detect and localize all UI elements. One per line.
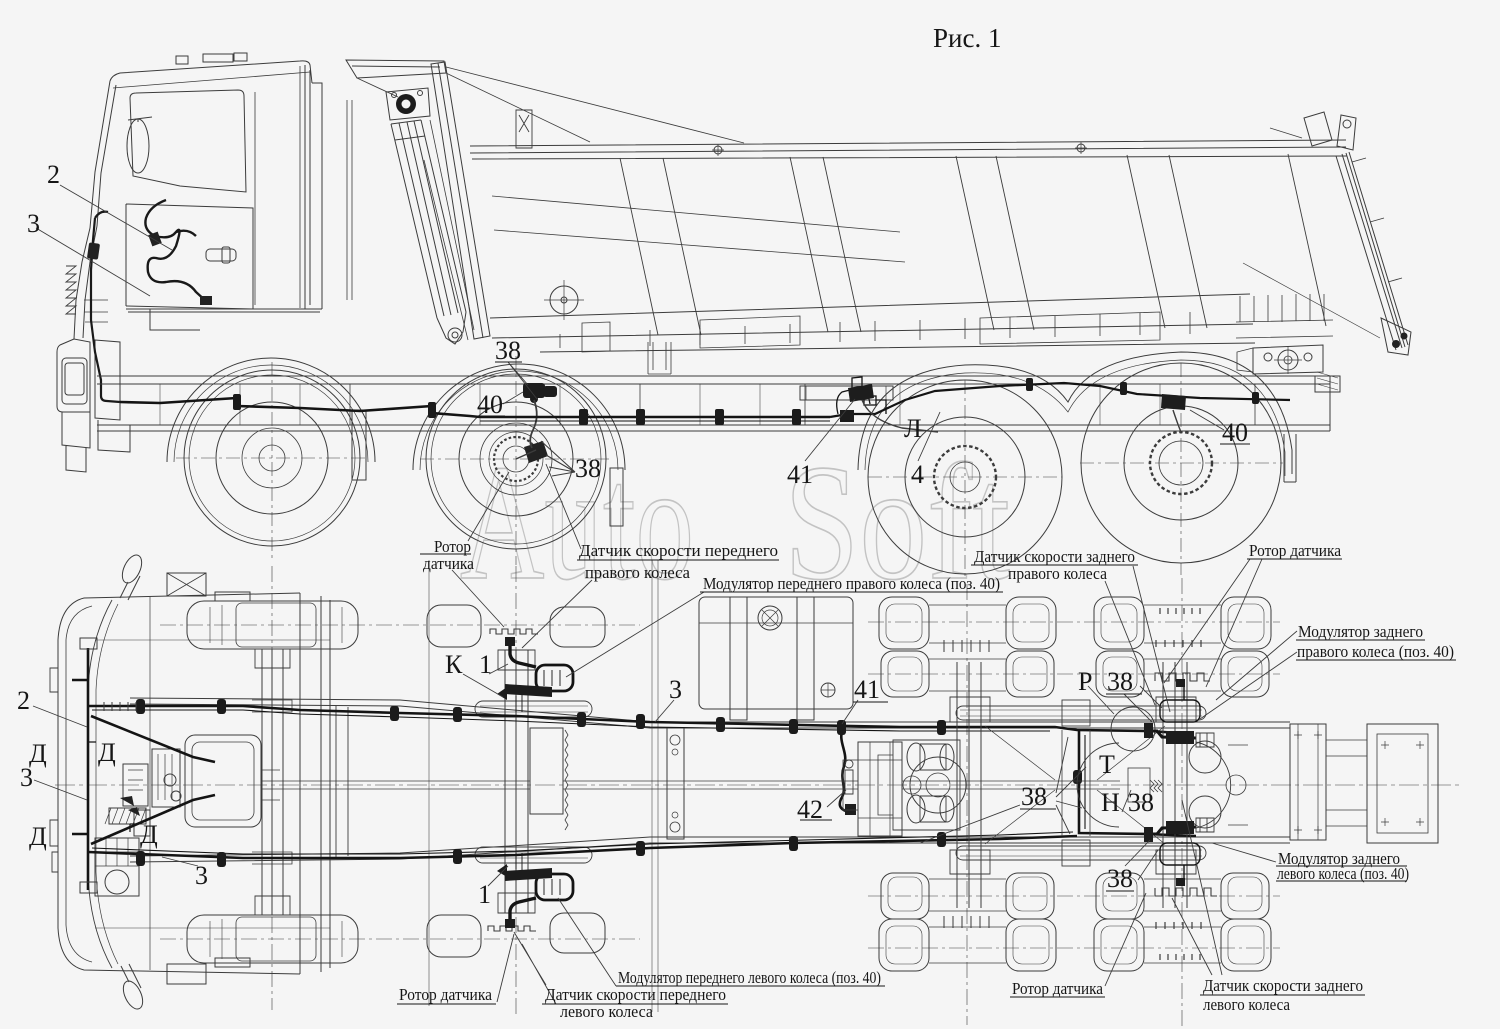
svg-text:правого колеса (поз. 40): правого колеса (поз. 40)	[1297, 642, 1454, 661]
svg-text:Датчик скорости переднего: Датчик скорости переднего	[579, 541, 778, 560]
svg-text:3: 3	[20, 763, 33, 792]
svg-text:2: 2	[17, 686, 30, 715]
svg-text:38: 38	[1021, 782, 1047, 811]
svg-text:Ротор датчика: Ротор датчика	[399, 985, 493, 1004]
svg-text:3: 3	[195, 861, 208, 890]
svg-text:датчика: датчика	[423, 554, 475, 573]
svg-text:левого колеса: левого колеса	[560, 1002, 654, 1021]
svg-text:2: 2	[47, 160, 60, 189]
svg-text:Модулятор переднего правого ко: Модулятор переднего правого колеса (поз.…	[703, 574, 1000, 593]
svg-text:1: 1	[478, 880, 491, 909]
svg-text:Д: Д	[29, 822, 47, 851]
svg-text:38: 38	[495, 336, 521, 365]
svg-text:Рис. 1: Рис. 1	[933, 23, 1001, 53]
svg-text:правого колеса: правого колеса	[585, 563, 691, 582]
svg-text:К: К	[445, 650, 463, 679]
svg-text:1: 1	[479, 650, 492, 679]
svg-text:38: 38	[1107, 864, 1133, 893]
svg-text:Н: Н	[1101, 788, 1120, 817]
svg-text:Ротор датчика: Ротор датчика	[1249, 541, 1342, 560]
svg-text:41: 41	[787, 460, 813, 489]
svg-text:40: 40	[477, 390, 503, 419]
svg-text:Модулятор заднего: Модулятор заднего	[1298, 622, 1423, 641]
svg-text:левого колеса (поз. 40): левого колеса (поз. 40)	[1277, 864, 1409, 883]
svg-text:3: 3	[669, 675, 682, 704]
svg-text:38: 38	[1128, 788, 1154, 817]
svg-text:Датчик скорости заднего: Датчик скорости заднего	[1203, 976, 1363, 995]
svg-text:3: 3	[27, 209, 40, 238]
svg-text:42: 42	[797, 795, 823, 824]
svg-text:Модулятор переднего левого кол: Модулятор переднего левого колеса (поз. …	[618, 968, 881, 987]
svg-text:правого колеса: правого колеса	[1008, 564, 1108, 583]
svg-text:Д: Д	[140, 820, 158, 849]
svg-text:38: 38	[575, 454, 601, 483]
svg-text:Р: Р	[1078, 667, 1092, 696]
svg-text:Л: Л	[904, 414, 922, 443]
svg-text:41: 41	[854, 675, 880, 704]
svg-text:38: 38	[1107, 667, 1133, 696]
svg-text:4: 4	[911, 460, 924, 489]
svg-text:Т: Т	[1099, 750, 1115, 779]
svg-text:левого колеса: левого колеса	[1203, 995, 1290, 1014]
svg-text:40: 40	[1222, 418, 1248, 447]
svg-text:Д: Д	[98, 738, 116, 767]
svg-text:Ротор датчика: Ротор датчика	[1012, 979, 1103, 998]
